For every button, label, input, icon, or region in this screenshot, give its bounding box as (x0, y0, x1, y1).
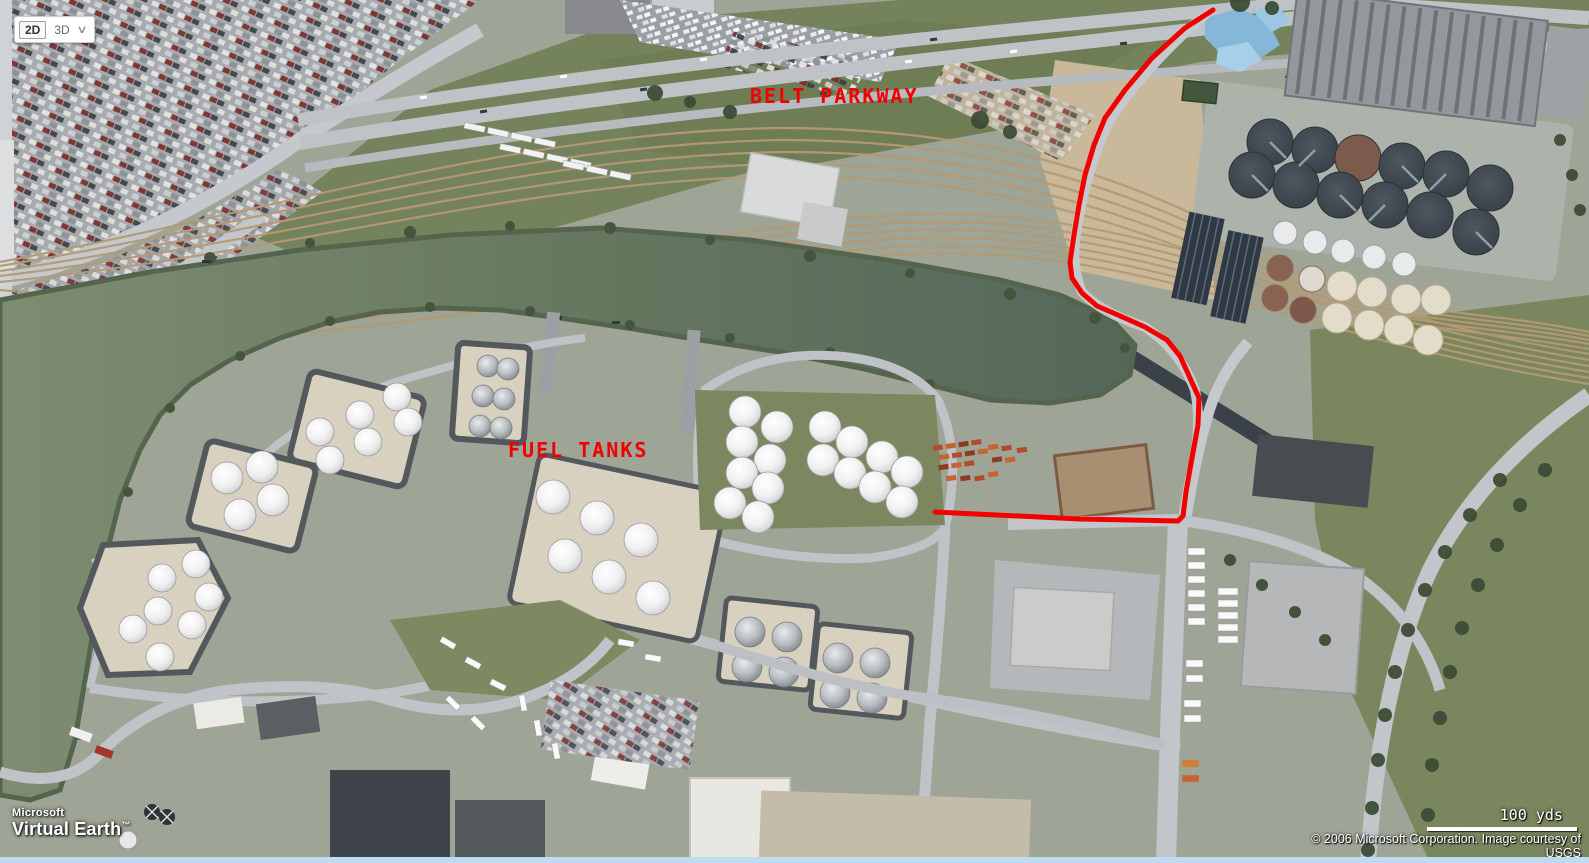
map-view-control: 2D 3D ∨ (14, 16, 95, 43)
satellite-imagery[interactable] (0, 0, 1589, 863)
scale-bar: 100 yds (1357, 806, 1577, 831)
attribution-line1: © 2006 Microsoft Corporation. Image cour… (1311, 832, 1581, 846)
view-3d-button[interactable]: 3D (54, 23, 69, 37)
scale-label: 100 yds (1500, 806, 1563, 824)
trademark-symbol: ™ (121, 820, 130, 830)
view-2d-button[interactable]: 2D (19, 21, 46, 39)
chevron-down-icon[interactable]: ∨ (76, 23, 87, 36)
logo-product: Virtual Earth™ (12, 820, 131, 839)
annotation-belt-parkway: BELT PARKWAY (750, 84, 919, 108)
virtual-earth-map[interactable]: BELT PARKWAY FUEL TANKS 2D 3D ∨ Microsof… (0, 0, 1589, 863)
annotation-fuel-tanks: FUEL TANKS (508, 438, 648, 462)
bottom-edge-strip (0, 857, 1589, 863)
virtual-earth-logo: Microsoft Virtual Earth™ (12, 808, 131, 838)
scale-bar-line (1427, 827, 1577, 831)
